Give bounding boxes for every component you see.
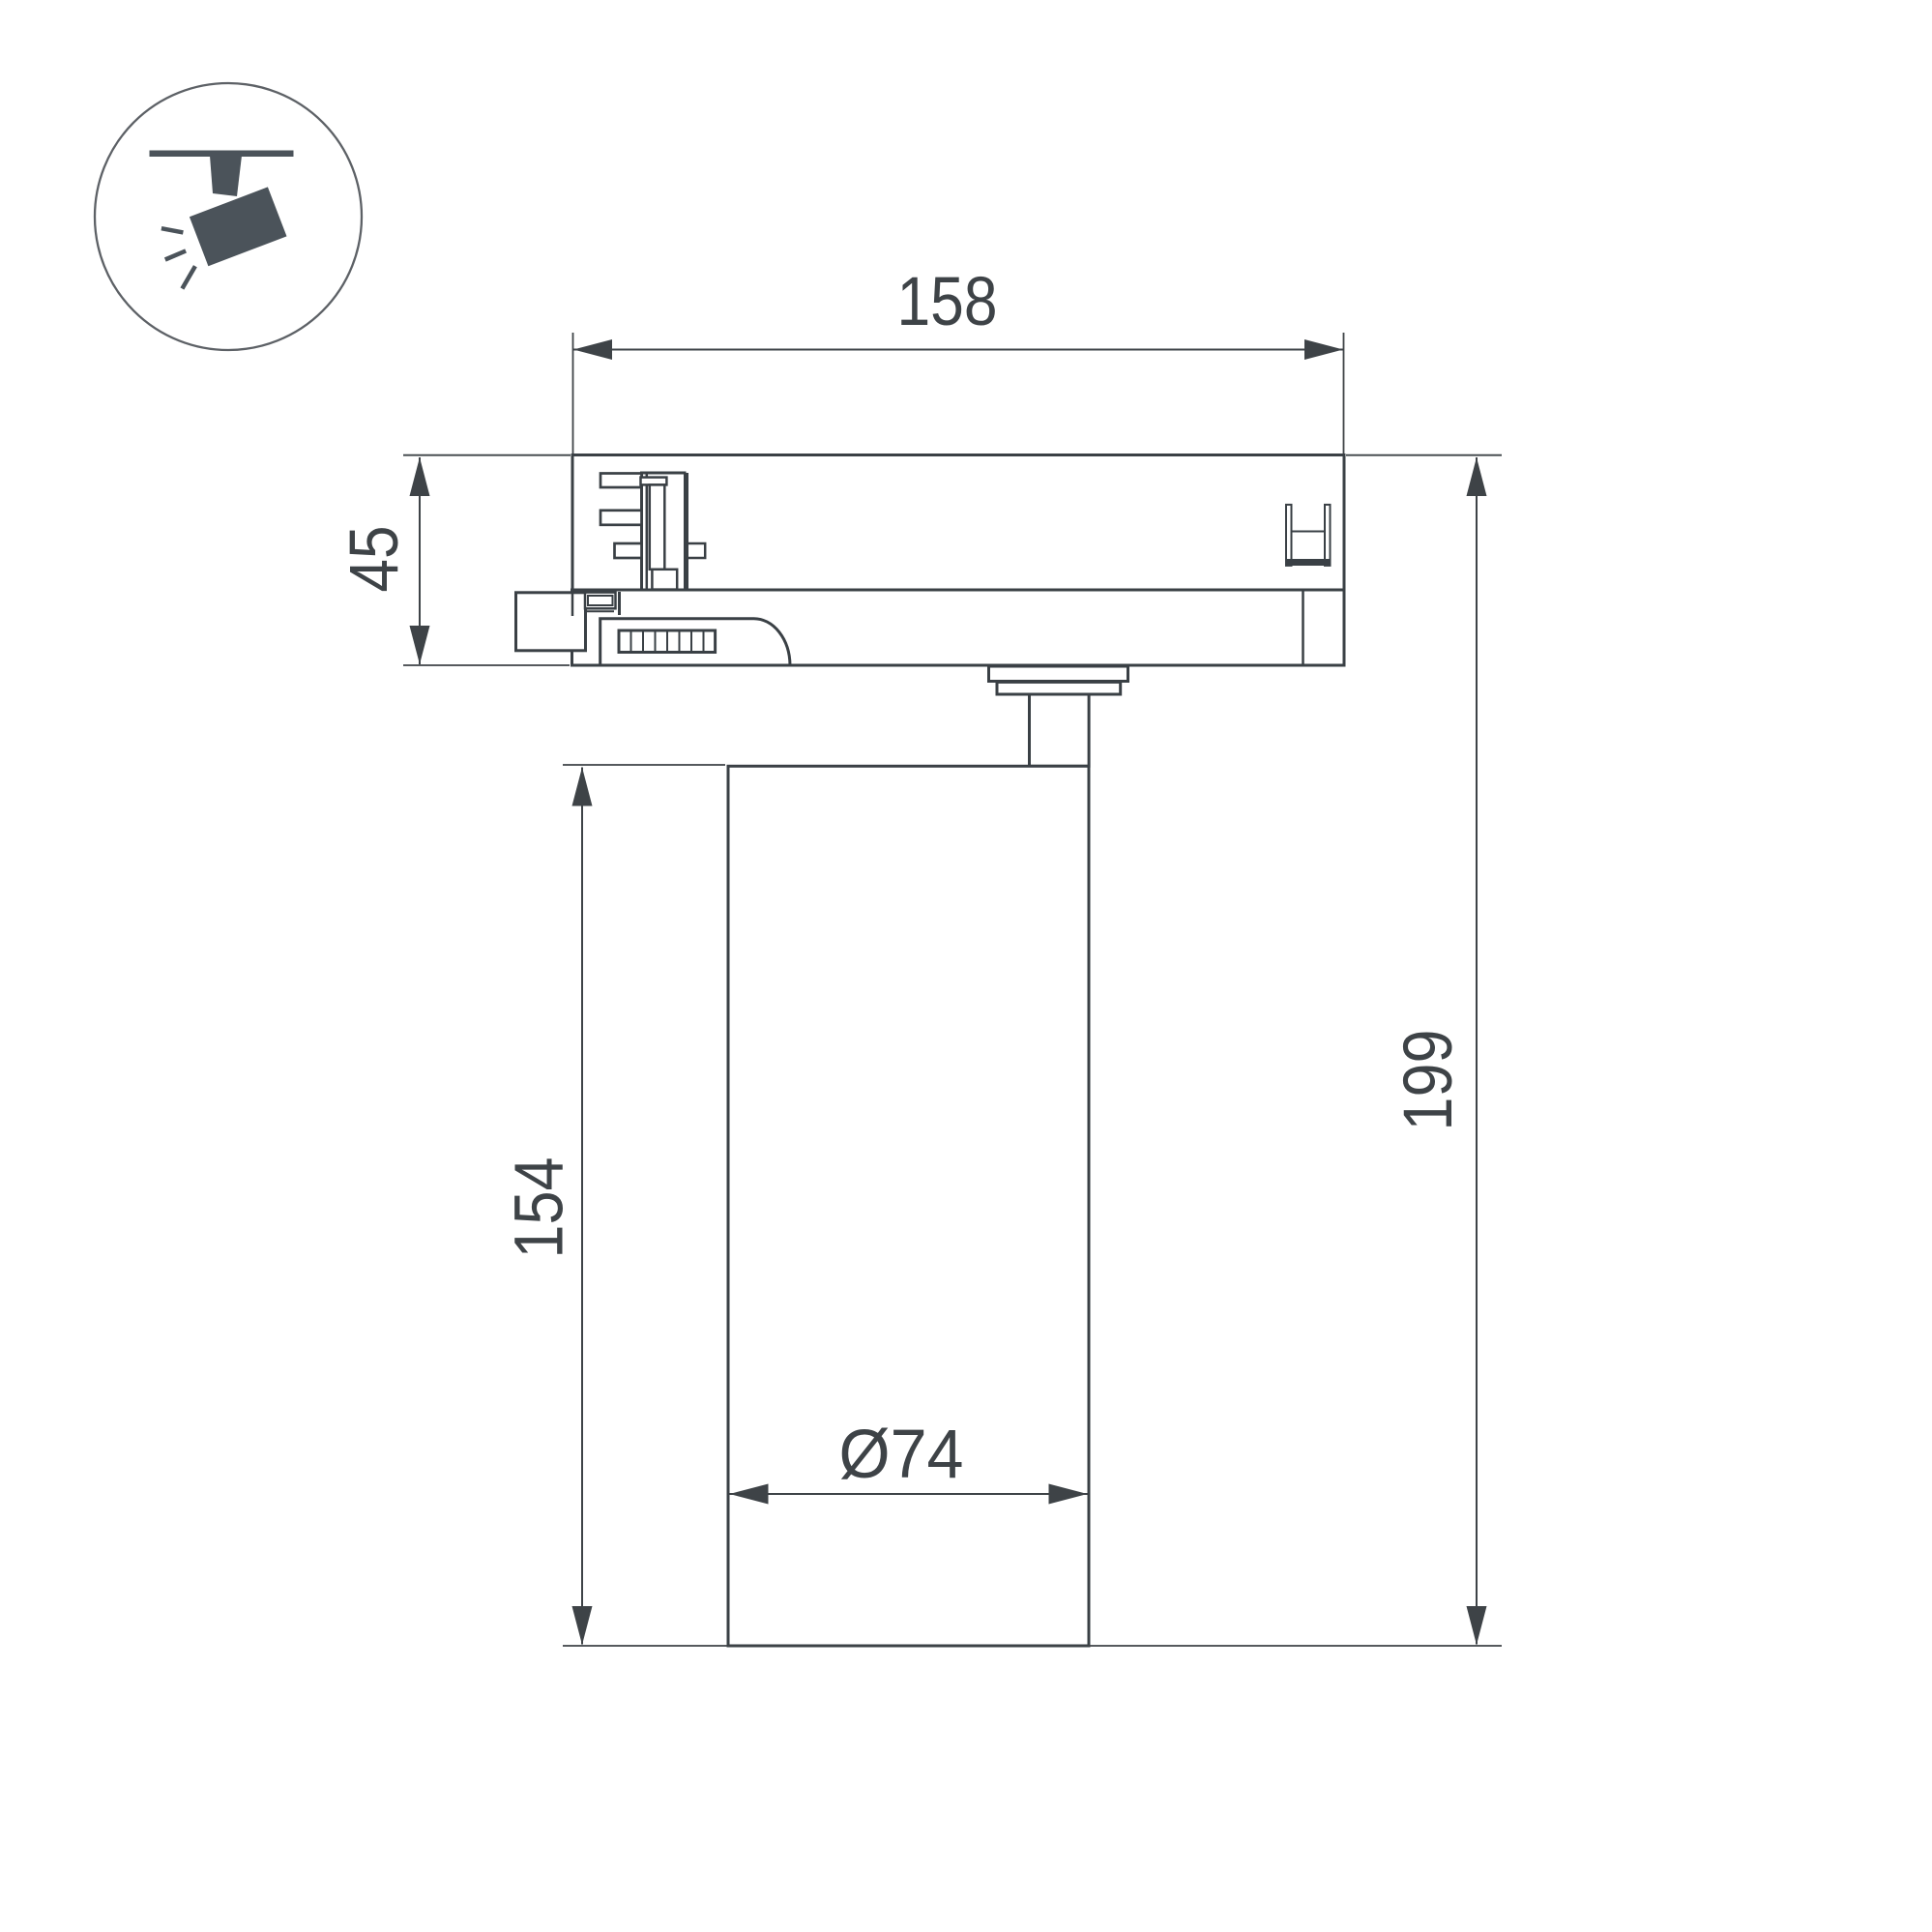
svg-text:158: 158 (897, 263, 998, 340)
svg-text:45: 45 (336, 526, 413, 593)
svg-text:Ø74: Ø74 (839, 1416, 964, 1493)
svg-text:199: 199 (1390, 1030, 1467, 1131)
svg-text:154: 154 (501, 1157, 578, 1259)
